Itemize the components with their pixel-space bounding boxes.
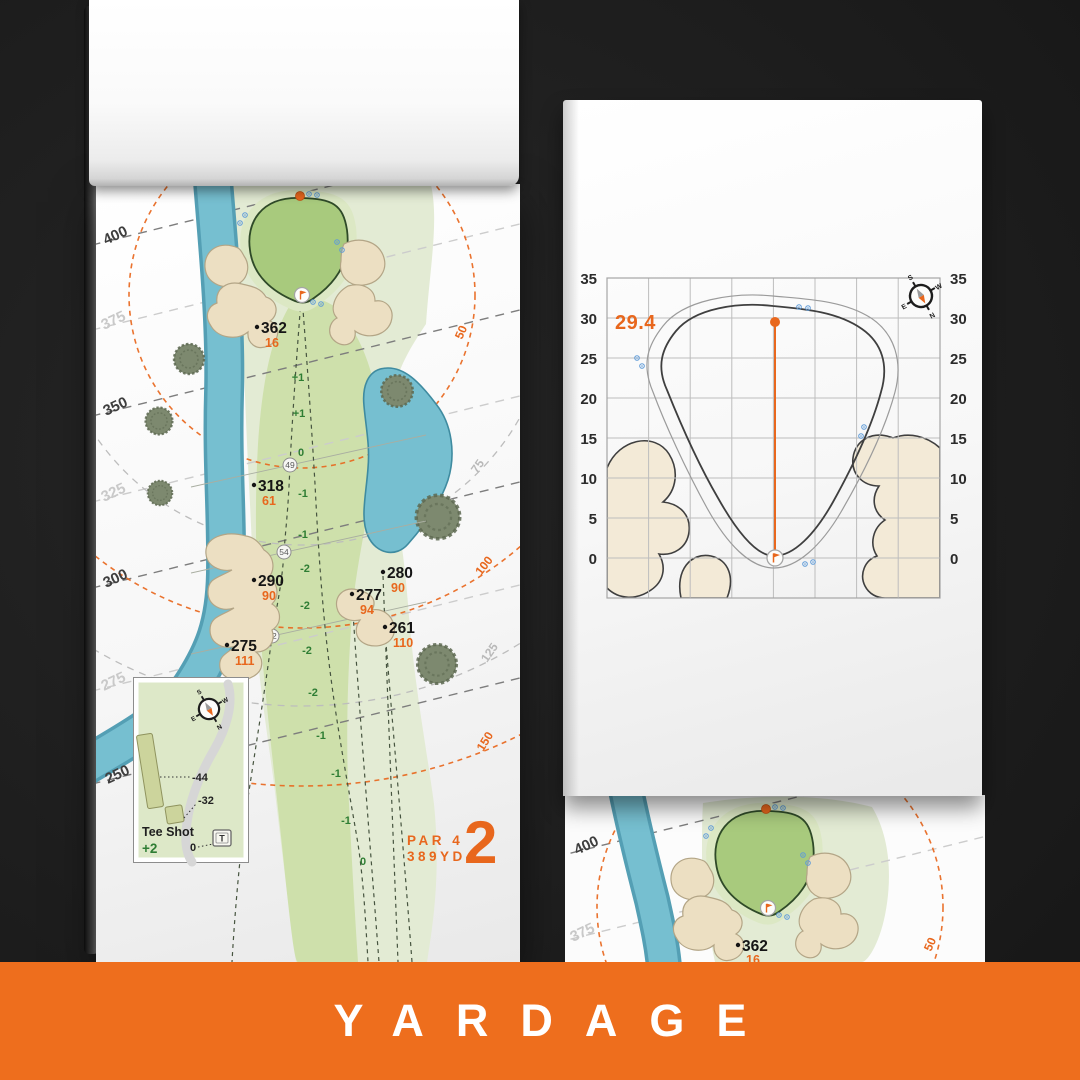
svg-text:275: 275 <box>231 638 257 655</box>
svg-text:400: 400 <box>101 223 131 249</box>
tee-marker-icon: T <box>213 830 231 846</box>
depth-value: 29.4 <box>615 312 656 334</box>
svg-text:20: 20 <box>950 391 967 408</box>
svg-text:375: 375 <box>99 308 129 334</box>
svg-text:-2: -2 <box>302 645 312 657</box>
svg-text:90: 90 <box>391 581 405 595</box>
axis-labels-right: 35 30 25 20 15 10 5 0 <box>950 271 967 568</box>
svg-text:10: 10 <box>580 471 597 488</box>
svg-text:+1: +1 <box>292 372 305 384</box>
long-tee-offset: -44 <box>192 772 209 784</box>
tee-shot-inset: -44 -32 Tee Shot +2 0 T <box>134 678 249 863</box>
svg-text:275: 275 <box>99 669 129 695</box>
tee-box-short <box>165 805 184 824</box>
svg-text:5: 5 <box>950 511 958 528</box>
svg-text:0: 0 <box>589 551 597 568</box>
svg-text:T: T <box>219 834 225 844</box>
svg-text:35: 35 <box>580 271 597 288</box>
hole-number: 2 <box>464 809 497 876</box>
svg-text:325: 325 <box>99 480 129 506</box>
svg-text:30: 30 <box>580 311 597 328</box>
svg-text:-1: -1 <box>298 488 308 500</box>
svg-text:90: 90 <box>262 589 276 603</box>
svg-text:-2: -2 <box>300 563 310 575</box>
svg-text:-1: -1 <box>316 730 326 742</box>
tee-shot-title: Tee Shot <box>142 825 195 839</box>
arc-labels: 50 75 100 125 150 <box>452 323 501 754</box>
svg-text:54: 54 <box>279 547 289 557</box>
svg-text:100: 100 <box>472 553 496 578</box>
svg-text:400: 400 <box>572 833 602 859</box>
svg-text:375: 375 <box>568 920 598 946</box>
svg-text:318: 318 <box>258 478 284 495</box>
svg-text:0: 0 <box>360 856 366 868</box>
svg-text:-1: -1 <box>341 815 351 827</box>
short-tee-offset: -32 <box>198 795 214 807</box>
svg-text:5: 5 <box>589 511 597 528</box>
yards-label: 389YD <box>407 849 466 864</box>
svg-text:362: 362 <box>261 320 287 337</box>
hole-map-page: +1 +1 0 -1 -1 -2 -2 -2 -2 -1 -1 -1 0 49 … <box>96 184 520 962</box>
back-of-green-dot <box>770 317 780 327</box>
svg-text:-1: -1 <box>331 768 341 780</box>
svg-text:277: 277 <box>356 587 382 604</box>
svg-text:350: 350 <box>101 394 131 420</box>
axis-labels-left: 35 30 25 20 15 10 5 0 <box>580 271 597 568</box>
svg-text:25: 25 <box>580 351 597 368</box>
svg-text:+1: +1 <box>293 408 306 420</box>
svg-text:125: 125 <box>478 640 501 665</box>
distance-labels: 400 375 <box>568 833 602 946</box>
page-compass <box>890 263 955 330</box>
next-hole-page: 400 375 50 362 16 <box>565 795 985 962</box>
distance-labels: 400 375 350 325 300 275 250 <box>99 223 133 788</box>
river <box>625 795 664 962</box>
svg-text:20: 20 <box>580 391 597 408</box>
arc-label: 50 <box>921 935 939 953</box>
svg-text:290: 290 <box>258 573 284 590</box>
svg-text:0: 0 <box>950 551 958 568</box>
green-detail-art: 35 30 25 20 15 10 5 0 35 30 25 20 15 10 … <box>563 100 982 796</box>
svg-text:110: 110 <box>393 636 413 650</box>
svg-text:16: 16 <box>746 953 760 962</box>
flipped-page-back <box>89 0 519 186</box>
banner-title: YARDAGE <box>302 995 779 1047</box>
svg-text:94: 94 <box>360 603 374 617</box>
svg-text:15: 15 <box>950 431 967 448</box>
svg-text:111: 111 <box>235 654 255 668</box>
svg-text:300: 300 <box>101 566 131 592</box>
svg-text:30: 30 <box>950 311 967 328</box>
hole-map-art: +1 +1 0 -1 -1 -2 -2 -2 -2 -1 -1 -1 0 49 … <box>96 184 520 962</box>
svg-text:49: 49 <box>285 460 295 470</box>
svg-text:0: 0 <box>298 447 304 459</box>
next-hole-art: 400 375 50 362 16 <box>565 795 985 962</box>
svg-text:75: 75 <box>468 456 487 475</box>
svg-text:35: 35 <box>950 271 967 288</box>
svg-text:261: 261 <box>389 620 415 637</box>
green-detail-page: 35 30 25 20 15 10 5 0 35 30 25 20 15 10 … <box>563 100 982 796</box>
svg-text:-2: -2 <box>308 687 318 699</box>
svg-text:150: 150 <box>474 729 497 754</box>
svg-text:16: 16 <box>265 336 279 350</box>
par-label: PAR 4 <box>407 833 463 848</box>
flag-icon <box>767 550 783 566</box>
tee-zero: 0 <box>190 842 196 854</box>
svg-text:25: 25 <box>950 351 967 368</box>
svg-text:-2: -2 <box>300 600 310 612</box>
svg-text:61: 61 <box>262 494 276 508</box>
svg-text:10: 10 <box>950 471 967 488</box>
svg-text:280: 280 <box>387 565 413 582</box>
svg-text:15: 15 <box>580 431 597 448</box>
yardage-banner: YARDAGE <box>0 962 1080 1080</box>
tee-shot-score: +2 <box>142 841 157 856</box>
svg-text:-1: -1 <box>298 529 308 541</box>
